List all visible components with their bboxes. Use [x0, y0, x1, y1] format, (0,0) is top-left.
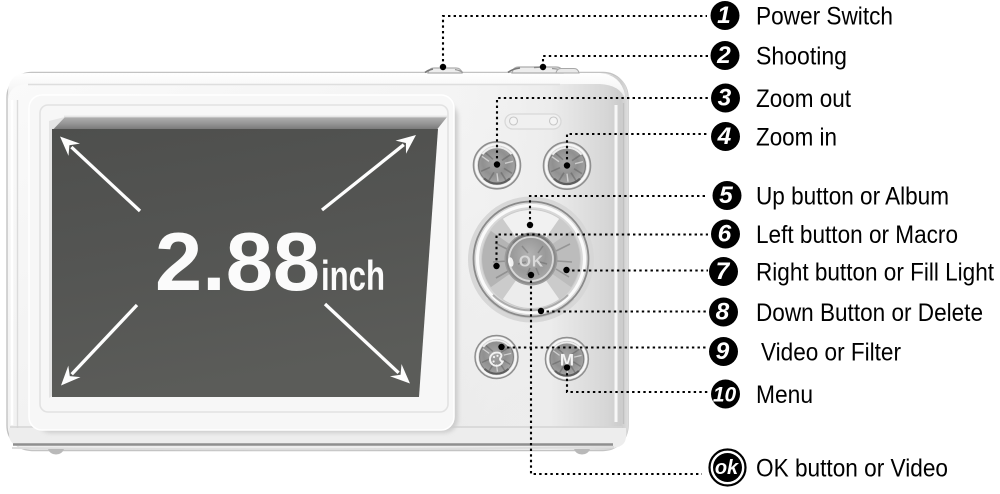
- svg-text:ok: ok: [715, 457, 739, 479]
- svg-text:OK button or Video: OK button or Video: [756, 455, 948, 483]
- svg-text:OK: OK: [519, 254, 544, 271]
- svg-text:5: 5: [719, 182, 733, 209]
- svg-text:Zoom out: Zoom out: [756, 85, 851, 113]
- svg-text:Down Button or Delete: Down Button or Delete: [756, 299, 983, 327]
- svg-text:9: 9: [716, 338, 730, 365]
- svg-text:8: 8: [716, 299, 730, 326]
- svg-text:Zoom in: Zoom in: [756, 124, 837, 152]
- svg-text:6: 6: [718, 221, 732, 248]
- svg-text:Right button or Fill Light: Right button or Fill Light: [756, 259, 994, 287]
- svg-text:2: 2: [716, 42, 731, 69]
- svg-text:1: 1: [717, 2, 731, 29]
- svg-text:7: 7: [716, 258, 731, 285]
- svg-text:3: 3: [718, 85, 732, 112]
- svg-text:inch: inch: [321, 252, 385, 299]
- svg-text:Shooting: Shooting: [756, 43, 847, 71]
- svg-text:4: 4: [717, 123, 732, 150]
- svg-text:Power Switch: Power Switch: [756, 3, 893, 31]
- svg-text:10: 10: [713, 384, 737, 407]
- svg-text:Menu: Menu: [756, 381, 813, 409]
- svg-text:2.88: 2.88: [155, 215, 320, 308]
- svg-text:Video or Filter: Video or Filter: [761, 339, 901, 367]
- svg-text:Left button or Macro: Left button or Macro: [756, 221, 958, 249]
- svg-text:Up button or Album: Up button or Album: [756, 183, 949, 211]
